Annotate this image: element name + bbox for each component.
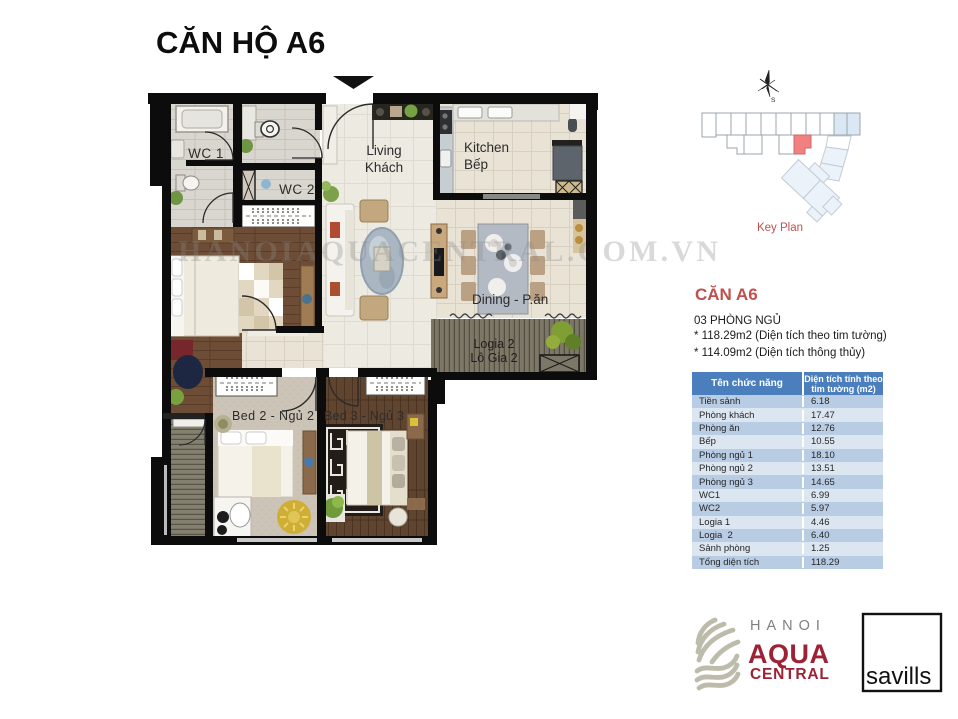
svg-text:S: S	[771, 97, 776, 104]
svg-text:Khách: Khách	[365, 160, 403, 175]
svg-text:WC 1: WC 1	[188, 146, 224, 161]
svg-text:Bếp: Bếp	[464, 157, 488, 172]
svg-text:Dining - P.ăn: Dining - P.ăn	[472, 292, 548, 307]
svg-text:Logia 2: Logia 2	[473, 337, 514, 351]
svg-text:Bed 2 - Ngủ 2: Bed 2 - Ngủ 2	[232, 409, 314, 423]
svg-text:savills: savills	[866, 663, 931, 690]
svg-text:Lô Gia 2: Lô Gia 2	[470, 351, 517, 365]
svg-text:Bed 3 - Ngủ 3: Bed 3 - Ngủ 3	[324, 409, 404, 423]
svg-text:HANOIAQUACENTRAL.COM.VN: HANOIAQUACENTRAL.COM.VN	[178, 235, 718, 268]
svg-text:Kitchen: Kitchen	[464, 140, 509, 155]
svg-text:WC 2: WC 2	[279, 182, 315, 197]
svg-text:Living: Living	[366, 143, 401, 158]
